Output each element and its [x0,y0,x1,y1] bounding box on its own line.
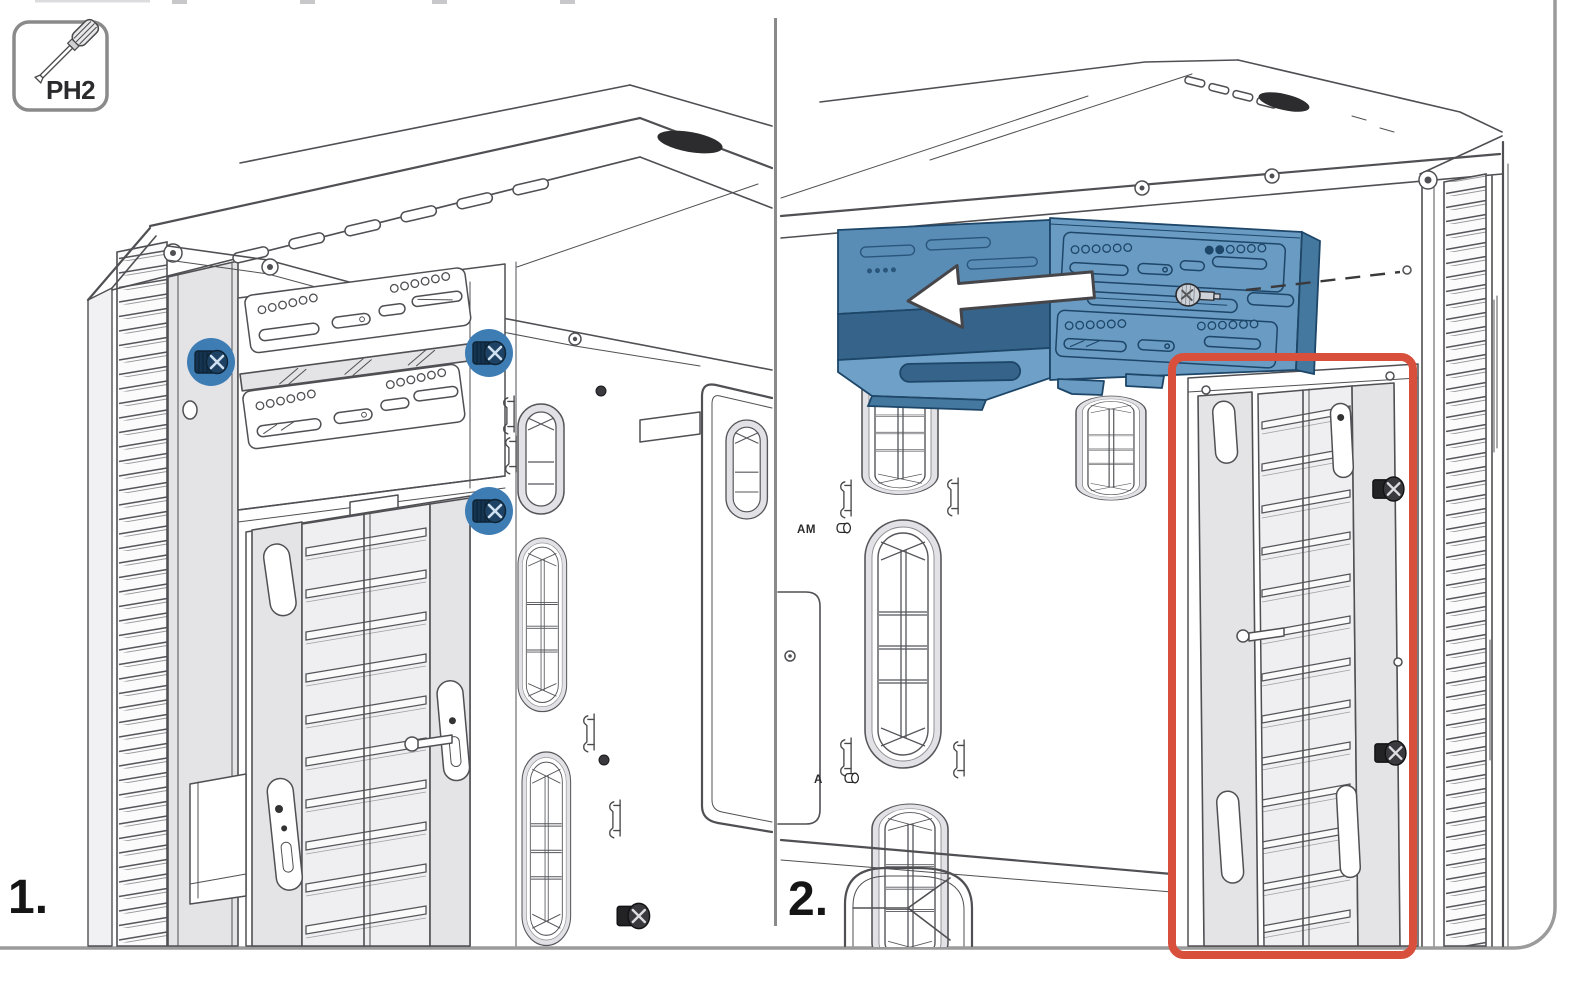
top-vent-slots [232,178,549,264]
standoff-icon-am [837,523,850,533]
case1-front-vent-strip [117,242,167,946]
case1-top-panel [88,85,772,300]
top-edge-ticks [35,0,575,4]
thumbscrew-highlight-2 [465,329,513,377]
step2-label: 2. [788,873,828,926]
case2-fan-bracket [1188,364,1418,946]
bracket-thumbscrew-2 [1375,741,1406,765]
top-vent-slots-2 [1184,76,1277,109]
figure-canvas: AM A [0,0,1587,994]
top-port-hole-2 [1257,88,1311,115]
case2-motherboard-tray: AM A [778,368,1172,968]
top-port-hole [656,126,724,157]
thumbscrew-highlight-1 [187,338,235,386]
case2-front-column [1419,142,1508,946]
bracket-thumbscrew-1 [1373,477,1404,501]
standoff-label-am: AM [797,524,816,536]
case1-drive-bays [238,264,505,522]
case1-side-interior [504,384,772,945]
panel-1-illustration [88,85,772,946]
step1-label: 1. [8,871,48,924]
panel-2-illustration: AM A [778,60,1508,968]
case1-front-edge [88,288,112,946]
tool-badge-label: PH2 [46,75,95,105]
standoff-label-a: A [814,774,823,786]
thumbscrew-highlight-3 [465,487,513,535]
case2-top-panel [781,60,1502,238]
tool-badge: PH2 [14,17,107,110]
standoff-icon-a [845,773,858,783]
manual-figure-page: AM A [0,0,1587,994]
